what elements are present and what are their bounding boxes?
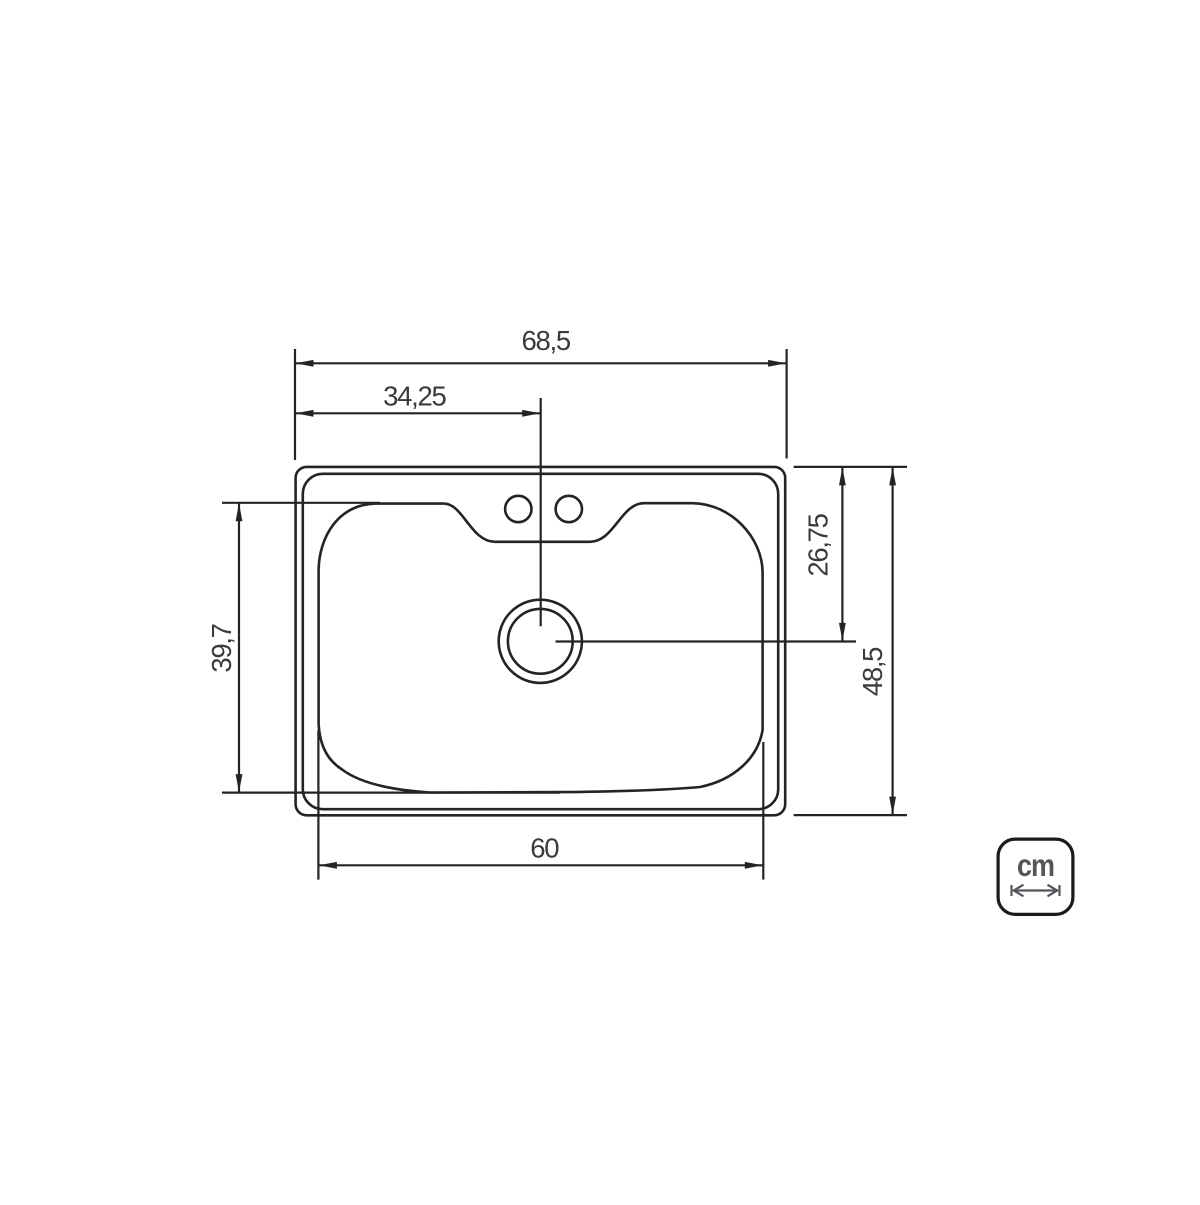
svg-text:26,75: 26,75	[803, 513, 834, 576]
svg-text:39,7: 39,7	[206, 624, 237, 672]
svg-text:34,25: 34,25	[383, 381, 446, 412]
svg-text:48,5: 48,5	[857, 647, 888, 696]
svg-text:cm: cm	[1017, 848, 1054, 884]
svg-text:60: 60	[530, 833, 559, 864]
svg-text:68,5: 68,5	[522, 325, 571, 356]
